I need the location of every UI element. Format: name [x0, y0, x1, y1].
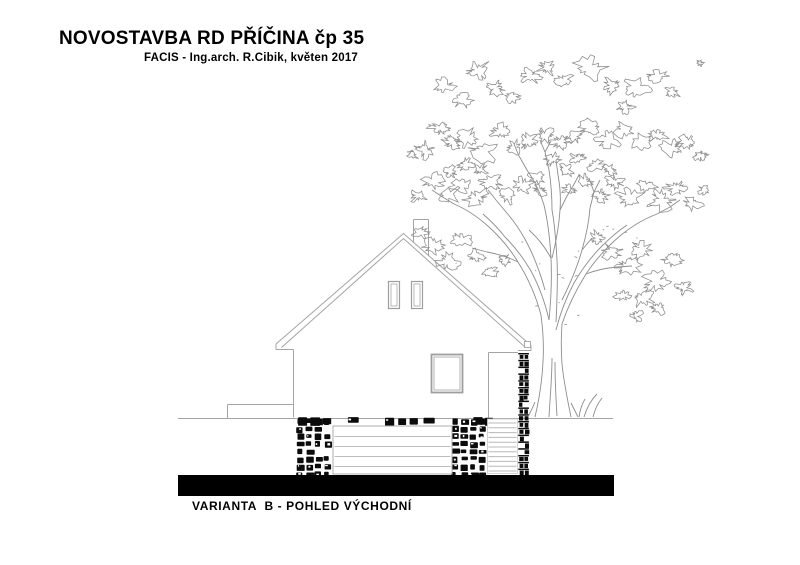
elevation-drawing: [0, 0, 800, 565]
terrain-lines: [178, 405, 613, 419]
garage-door: [333, 426, 452, 474]
house-outline: [276, 234, 531, 418]
ground-bar: [178, 475, 614, 496]
drawing-sheet: NOVOSTAVBA RD PŘÍČINA čp 35 FACIS - Ing.…: [0, 0, 800, 565]
house-windows: [389, 282, 463, 393]
sheet-caption: VARIANTA B - POHLED VÝCHODNÍ: [192, 499, 412, 513]
